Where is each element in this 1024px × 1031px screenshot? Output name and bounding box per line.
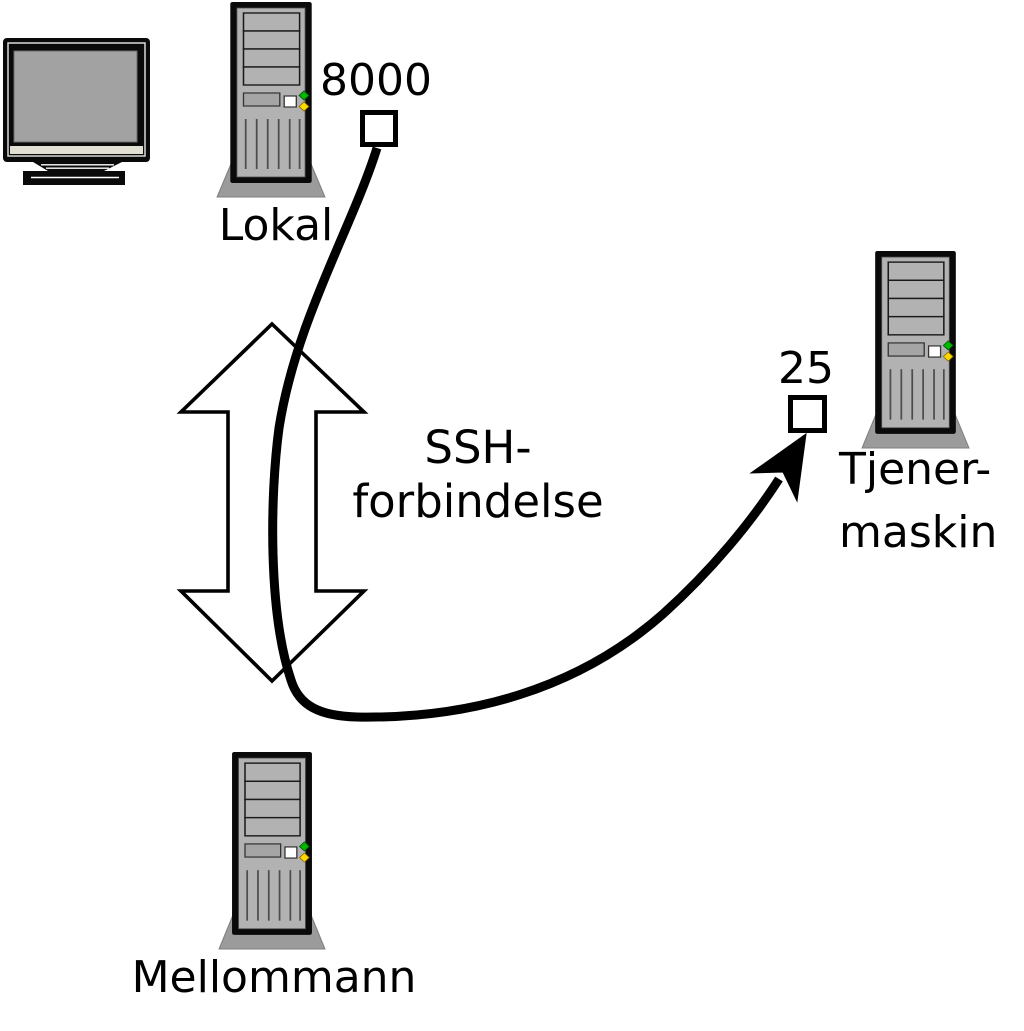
cable-arrowhead-icon [751,434,806,501]
server-port-box [788,395,827,433]
local-machine-label: Lokal [214,204,338,248]
local-port-box [360,110,398,147]
local-computer-tower-icon [217,2,325,197]
server-machine-label-line2: maskin [839,501,997,564]
local-port-number: 8000 [320,59,432,103]
ssh-connection-label-line2: forbindelse [330,475,626,529]
ssh-connection-label: SSH- forbindelse [330,421,626,529]
middleman-computer-tower-icon [219,752,325,949]
server-machine-label: Tjener- maskin [839,438,997,564]
ssh-connection-label-line1: SSH- [330,421,626,475]
server-machine-label-line1: Tjener- [839,438,997,501]
server-port-number: 25 [778,347,834,391]
server-computer-tower-icon [862,251,969,448]
crt-monitor-icon [3,38,150,185]
middleman-machine-label: Mellommann [128,956,420,1000]
ssh-tunnel-diagram: 8000 Lokal SSH- forbindelse 25 Tjener- m… [0,0,1024,1031]
